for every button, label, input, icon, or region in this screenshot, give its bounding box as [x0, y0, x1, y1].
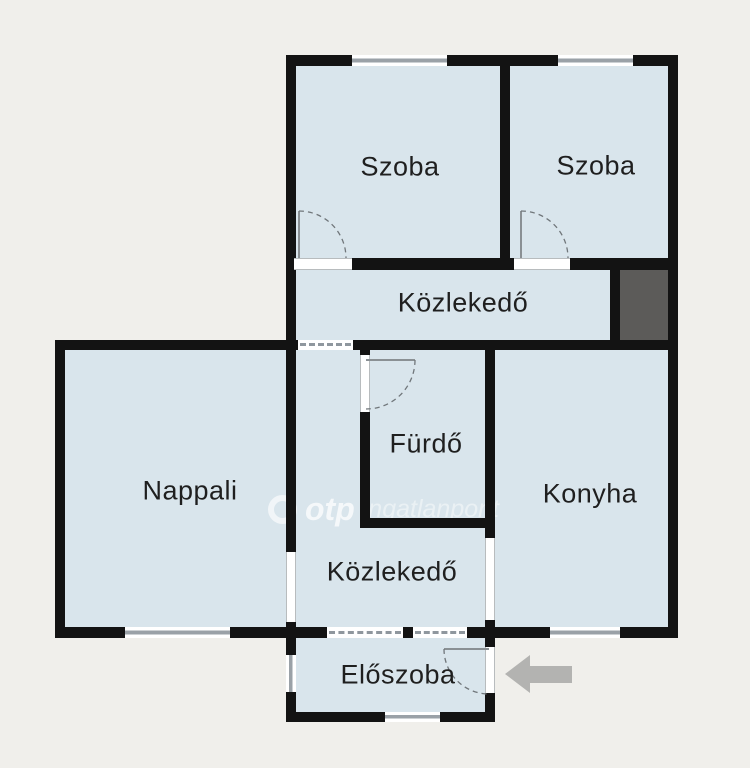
label-hallway-lower: Közlekedő: [327, 557, 458, 588]
label-szoba-left: Szoba: [360, 152, 439, 183]
label-nappali: Nappali: [142, 476, 237, 507]
label-szoba-right: Szoba: [556, 151, 635, 182]
label-eloszoba: Előszoba: [340, 660, 455, 691]
floor-plan: otp ingatlanpont: [0, 0, 750, 768]
label-konyha: Konyha: [543, 479, 638, 510]
label-furdo: Fürdő: [389, 429, 462, 460]
entrance-arrow-icon: [505, 655, 572, 693]
door-swing-furdo-icon: [366, 360, 415, 409]
door-swing-szoba-right-icon: [521, 211, 568, 258]
door-swing-szoba-left-icon: [299, 211, 346, 258]
door-swings-overlay: [0, 0, 750, 768]
label-hallway-upper: Közlekedő: [398, 288, 529, 319]
